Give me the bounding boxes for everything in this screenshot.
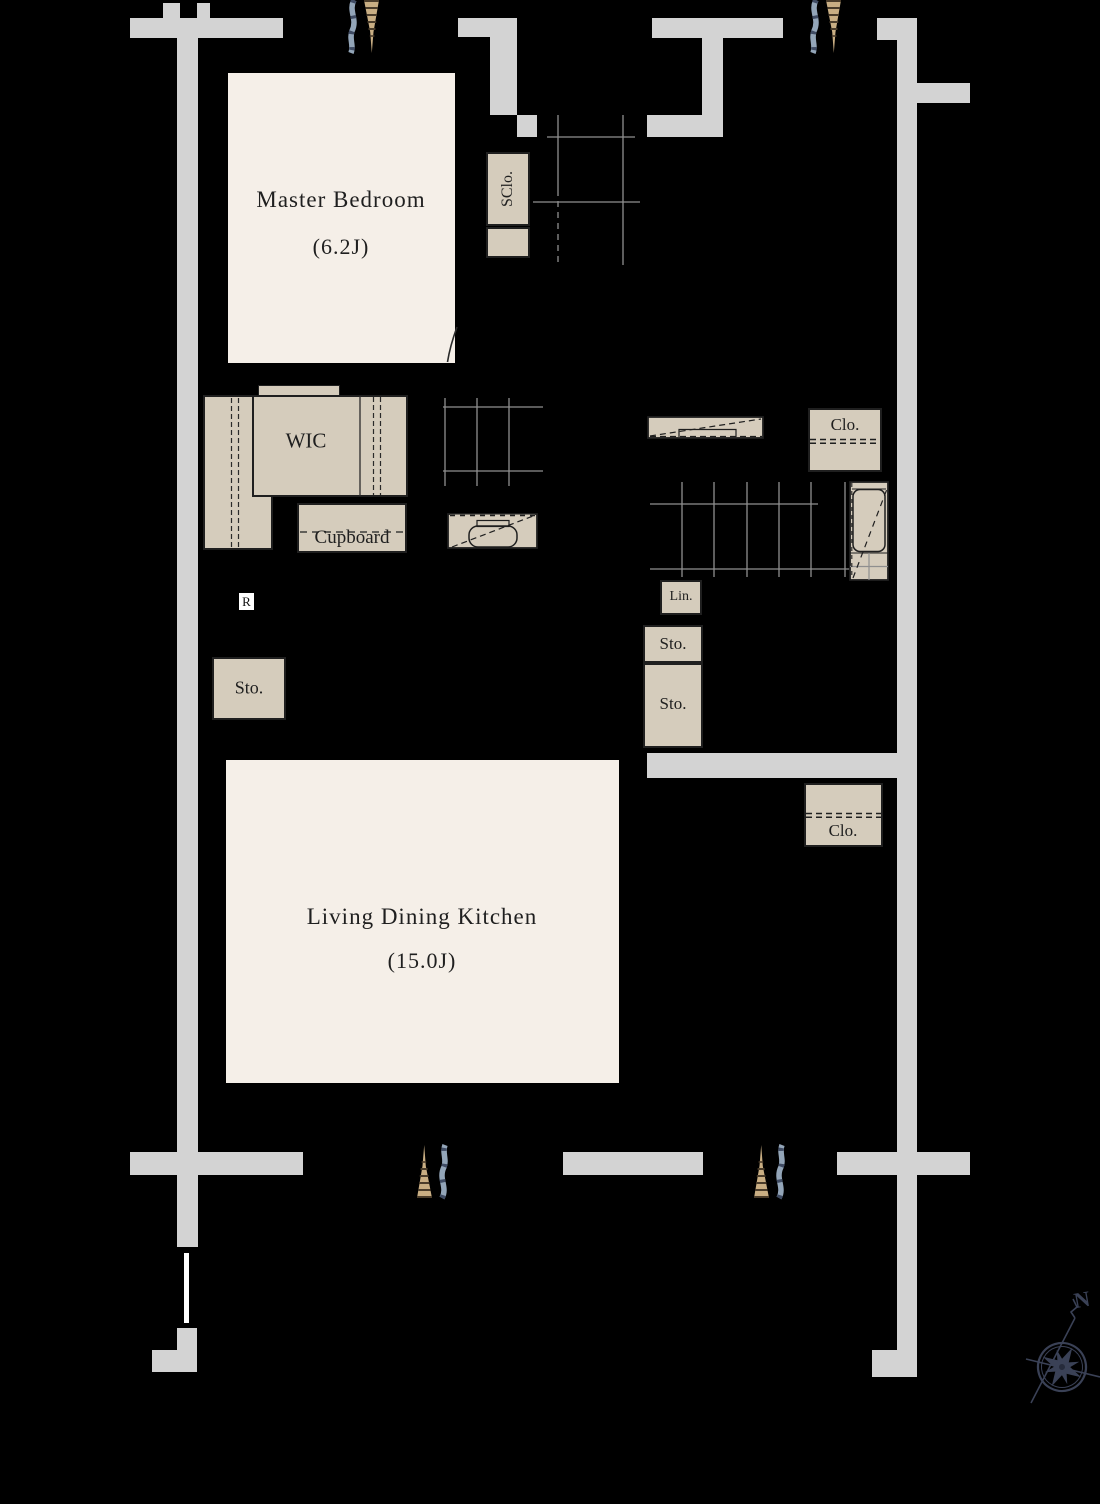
bathtub-symbol [850, 482, 888, 580]
plan-decorations [0, 0, 1100, 1504]
wall-left-vertical [177, 38, 198, 1247]
shoe-closet-label: SClo. [499, 171, 517, 207]
wall-right-stub [917, 83, 970, 103]
closet-upper-label: Clo. [831, 415, 860, 435]
wall-left-l-foot [152, 1350, 197, 1372]
washroom-tile-grid [443, 398, 543, 486]
wall-top-left-bar [130, 18, 283, 38]
window-symbol-top-right [813, 0, 841, 53]
wall-right-vertical [897, 40, 917, 1377]
north-label: N [1072, 1286, 1092, 1314]
storage-hall-lower-label: Sto. [660, 694, 687, 714]
window-symbol-bottom-left [417, 1145, 445, 1198]
compass-rose [1026, 1299, 1100, 1403]
ldk-size: (15.0J) [388, 948, 457, 974]
linen-label: Lin. [670, 589, 693, 605]
window-symbol-top-left [351, 0, 379, 53]
wall-bottom-middle [563, 1152, 703, 1175]
wall-right-l-foot [872, 1350, 897, 1377]
wall-top-stub-2 [197, 3, 210, 18]
wall-bottom-right [837, 1152, 970, 1175]
bathroom-tile-grid [650, 482, 888, 577]
cupboard-label: Cupboard [315, 527, 390, 549]
washbasin-symbol [448, 514, 537, 548]
wall-bottom-left [130, 1152, 303, 1175]
entrance-tile-grid [533, 115, 640, 267]
wic-main [252, 395, 408, 497]
balcony-gate-line [184, 1253, 189, 1323]
refrigerator-mark: R [239, 593, 254, 610]
wall-mid-top-bar [652, 18, 783, 38]
master-bedroom-label: Master Bedroom [256, 187, 425, 213]
wall-mid-foot [647, 115, 702, 137]
shoe-closet-lower [486, 227, 530, 258]
floor-plan: Master Bedroom (6.2J) Living Dining Kitc… [0, 0, 1100, 1504]
storage-left-label: Sto. [235, 678, 264, 699]
storage-hall-upper-label: Sto. [660, 634, 687, 654]
master-bedroom-size: (6.2J) [313, 234, 370, 260]
window-symbol-bottom-right [754, 1145, 782, 1198]
ldk-label: Living Dining Kitchen [307, 904, 538, 930]
counter-symbol [648, 417, 763, 438]
room-master-bedroom [228, 73, 455, 363]
wic-label: WIC [286, 429, 327, 454]
closet-lower-label: Clo. [829, 821, 858, 841]
wall-entrance-foot [517, 115, 537, 137]
wall-mid-stem [702, 38, 723, 137]
wall-entrance-vertical [490, 37, 517, 115]
wall-top-stub-1 [163, 3, 180, 18]
wall-mid-divider [647, 753, 897, 778]
wall-entrance-bar [458, 18, 517, 37]
wall-top-right-bar [877, 18, 917, 40]
